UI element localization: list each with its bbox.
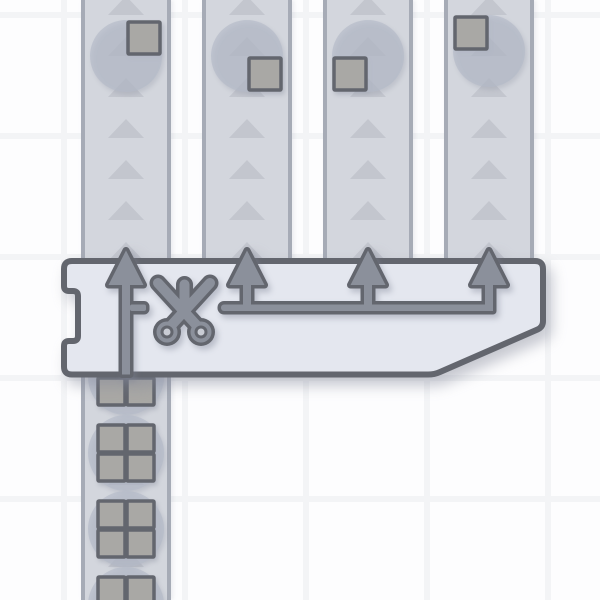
belt-edge-left [81, 0, 85, 260]
full-square-item [88, 415, 164, 491]
square-shape-cell [127, 530, 154, 557]
belt-edge-right [167, 0, 171, 260]
belt-edge-left [202, 0, 206, 260]
quarter-square-shape [334, 58, 366, 90]
square-shape-cell [127, 425, 154, 452]
belt-edge-right [530, 0, 534, 260]
square-shape-cell [127, 577, 154, 600]
square-shape-cell [98, 425, 125, 452]
quarter-square-shape [128, 22, 160, 54]
square-shape-cell [98, 577, 125, 600]
full-square-item [88, 491, 164, 567]
square-shape-cell [98, 454, 125, 481]
game-canvas [0, 0, 600, 600]
quarter-square-item [90, 20, 162, 92]
belt-edge-right [288, 0, 292, 260]
belt-edge-left [444, 0, 448, 260]
square-shape-cell [98, 378, 125, 405]
square-shape-cell [127, 454, 154, 481]
belt-edge-right [167, 376, 171, 600]
belt-edge-left [81, 376, 85, 600]
quarter-square-item [211, 20, 283, 92]
quarter-square-item [332, 20, 404, 92]
quarter-square-shape [455, 17, 487, 49]
scissors-handle-hole-center [198, 329, 205, 336]
quad-cutter-machine[interactable] [64, 251, 543, 375]
scissors-handle-hole-center [164, 329, 171, 336]
square-shape-cell [127, 378, 154, 405]
square-shape-cell [127, 501, 154, 528]
square-shape-cell [98, 530, 125, 557]
belt-edge-left [323, 0, 327, 260]
game-viewport [0, 0, 600, 600]
belt-edge-right [409, 0, 413, 260]
quarter-square-shape [249, 58, 281, 90]
square-shape-cell [98, 501, 125, 528]
quarter-square-item [453, 15, 525, 87]
